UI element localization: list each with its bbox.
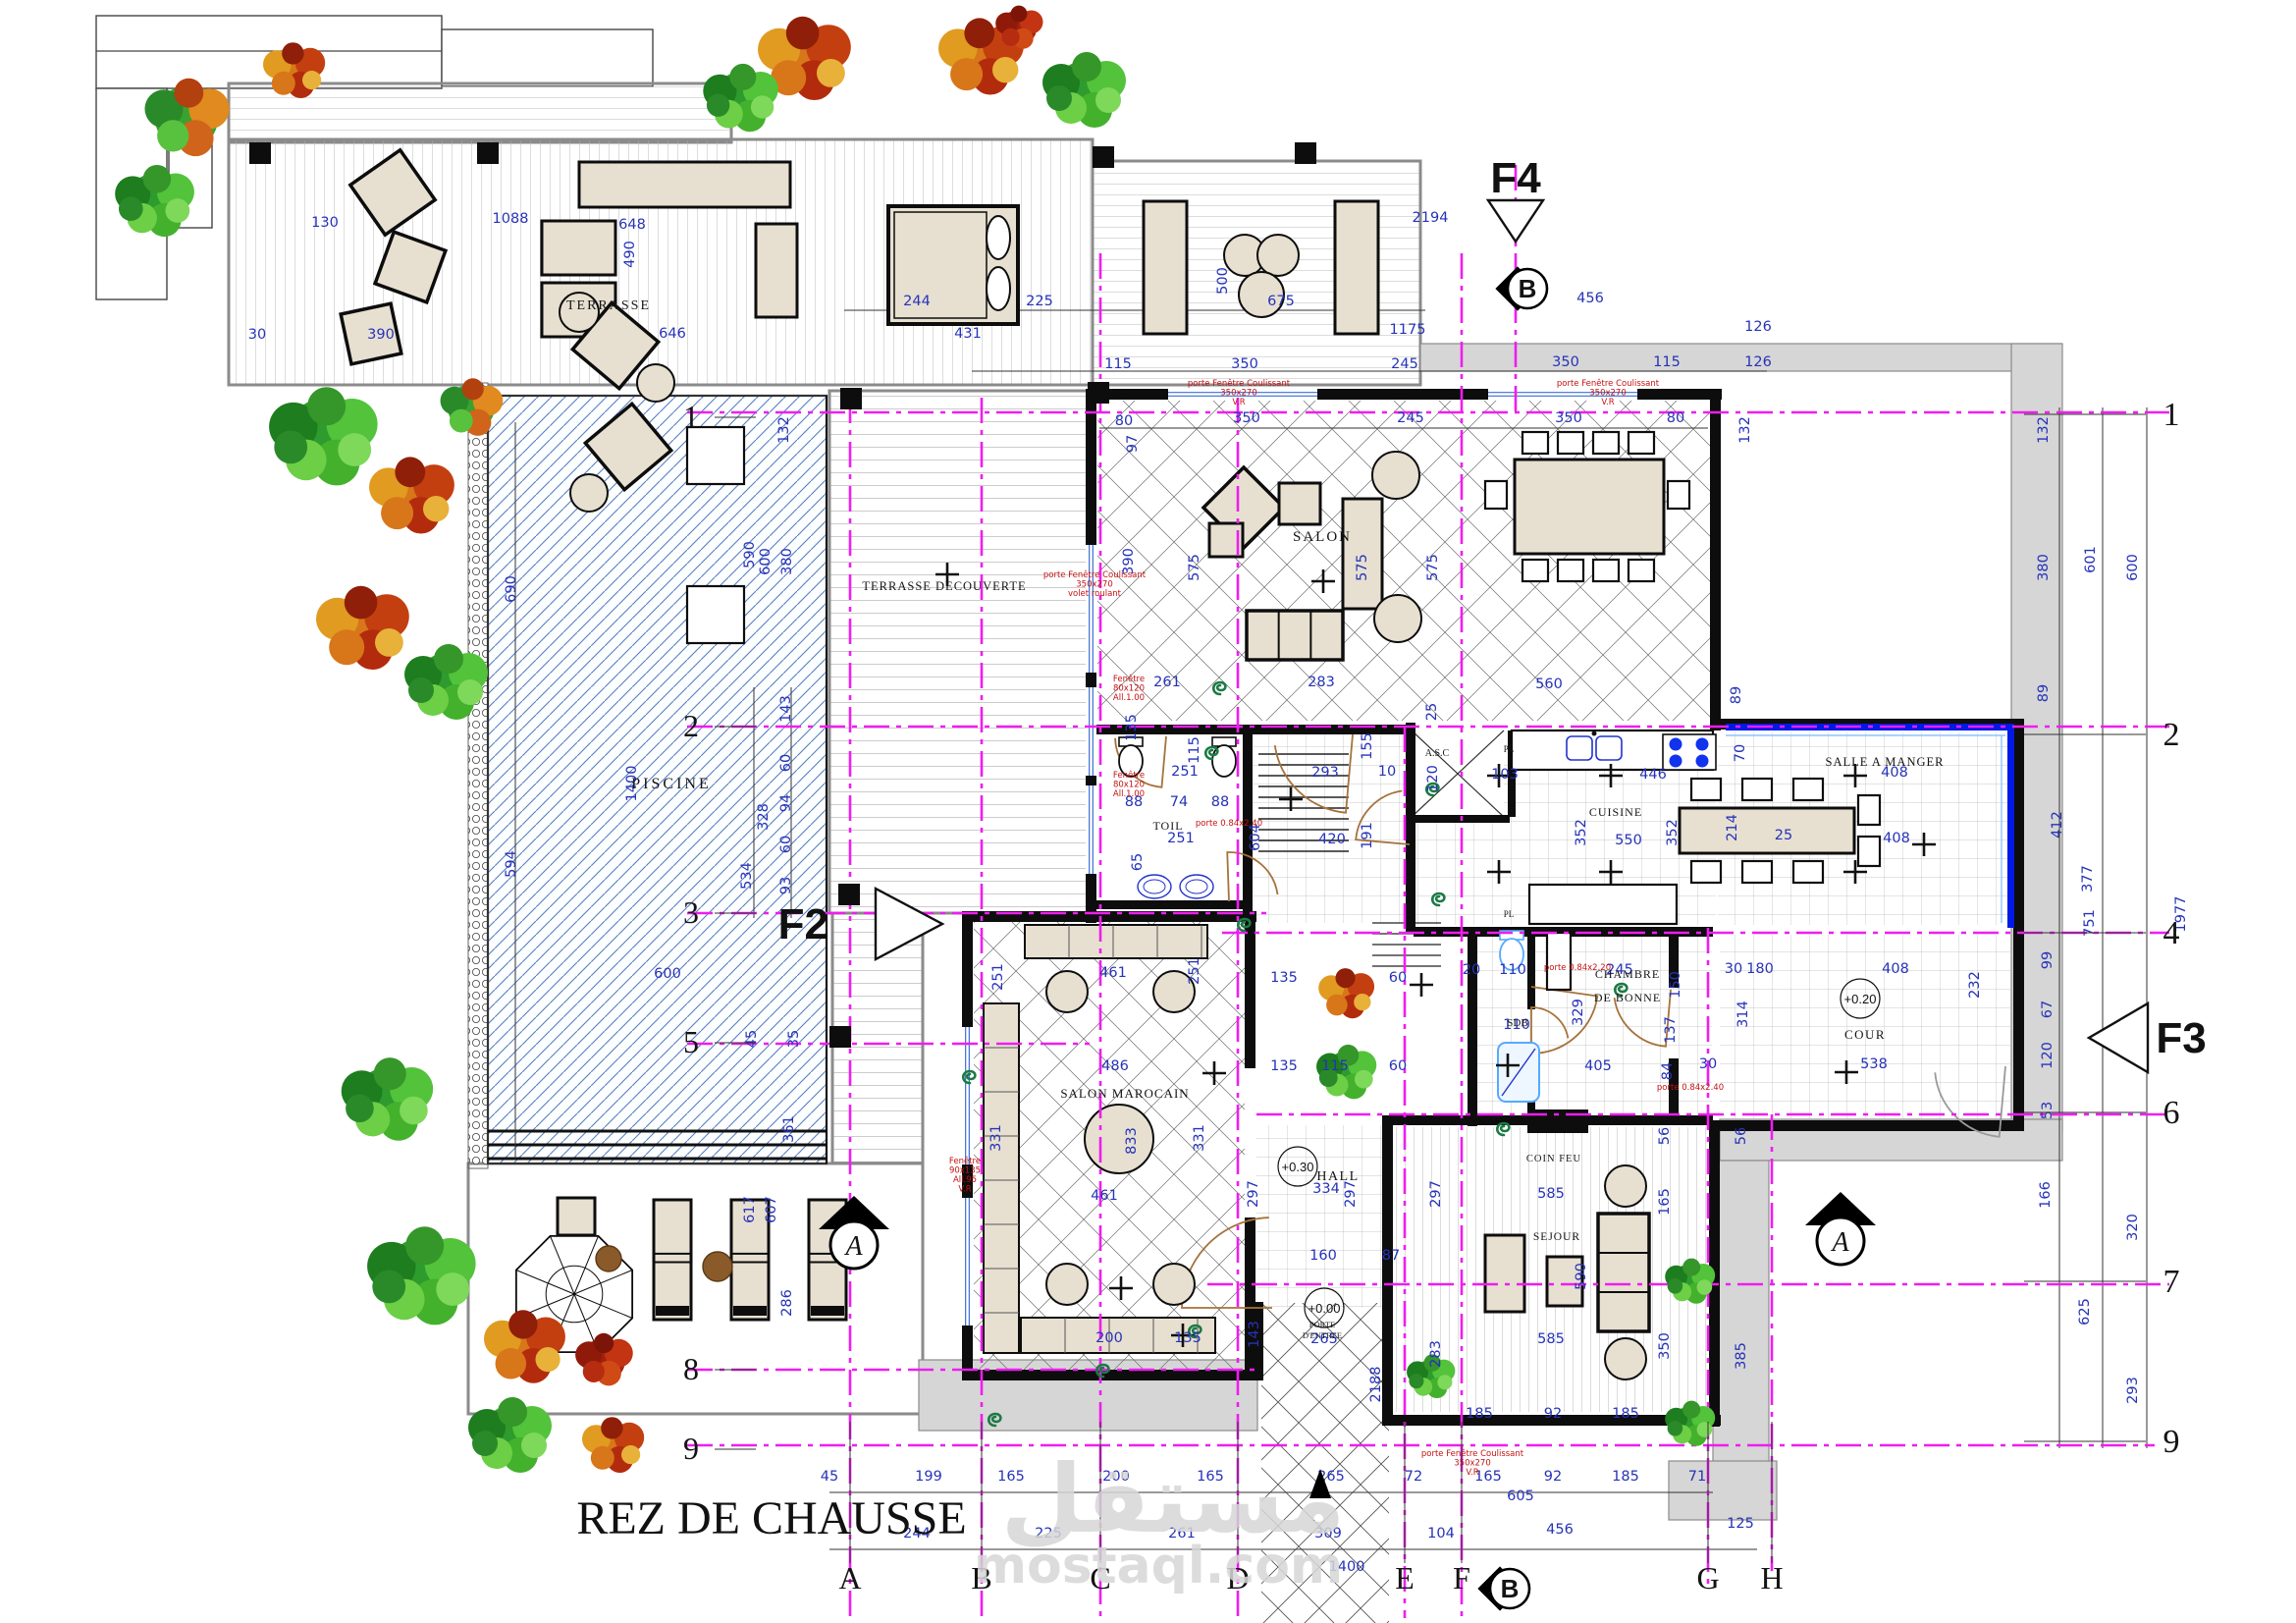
dimension-label: 350 (1231, 356, 1258, 372)
burner (1670, 755, 1682, 768)
dimension-label: 25 (1424, 703, 1440, 721)
dimension-label: 137 (1663, 1016, 1679, 1044)
window-annotation: Fenêtre80x120All.1.00 (1113, 674, 1145, 703)
window (962, 1027, 973, 1164)
dimension-label: 251 (1167, 831, 1195, 846)
dimension-label: 377 (2080, 865, 2096, 893)
dimension-label: 461 (1099, 965, 1127, 981)
grid-number: 1 (683, 399, 699, 434)
room-label: PL (1504, 744, 1515, 754)
dimension-label: 320 (2125, 1214, 2141, 1241)
dimension-label: 560 (1535, 676, 1563, 692)
dimension-label: 135 (1124, 714, 1140, 741)
furniture (558, 1198, 595, 1235)
dimension-label: 245 (1397, 410, 1424, 426)
furniture (1515, 460, 1664, 554)
furniture (1629, 560, 1654, 581)
room-label: DE BONNE (1594, 991, 1661, 1004)
dimension-label: 92 (1544, 1469, 1562, 1485)
page-title: REZ DE CHAUSSE (576, 1492, 966, 1544)
roof-outline (96, 16, 442, 88)
furniture (1335, 201, 1378, 334)
grid-letter: F (1453, 1560, 1470, 1596)
dimension-label: 70 (1733, 744, 1748, 762)
dimension-label: 115 (1653, 354, 1681, 370)
dimension-label: 130 (311, 215, 339, 231)
window (1086, 785, 1096, 874)
dimension-label: 115 (1321, 1058, 1349, 1074)
kitchen-sink (1596, 736, 1622, 760)
dimension-label: 200 (1095, 1330, 1123, 1346)
grid-number: 1 (2163, 397, 2180, 433)
round-furniture (1046, 1264, 1088, 1305)
bench (984, 1003, 1019, 1353)
dimension-label: 104 (1427, 1526, 1455, 1542)
room-label: HALL (1316, 1169, 1359, 1184)
wc-bowl (1212, 745, 1236, 777)
room-label: SALON MAROCAIN (1060, 1086, 1189, 1101)
dimension-label: 89 (2036, 684, 2052, 702)
dimension-label: 600 (2125, 554, 2141, 581)
level-value: +0.30 (1282, 1160, 1314, 1174)
dimension-label: 232 (1967, 971, 1983, 999)
grid-number: 4 (2163, 915, 2180, 951)
furniture (1522, 560, 1548, 581)
window (1086, 545, 1096, 673)
furniture (756, 224, 797, 317)
pillow (987, 216, 1010, 259)
column-post (1295, 142, 1316, 164)
grid-number: 2 (683, 708, 699, 743)
dimension-label: 67 (2040, 1001, 2056, 1018)
dimension-label: 646 (659, 326, 686, 342)
dimension-label: 486 (1101, 1058, 1129, 1074)
wall (1710, 389, 1721, 730)
furniture (1144, 201, 1187, 334)
dimension-label: 99 (2040, 951, 2056, 969)
dimension-label: 132 (776, 416, 792, 444)
wall (1527, 927, 1535, 1009)
dimension-label: 431 (954, 326, 982, 342)
wall (1406, 723, 1415, 933)
dimension-label: 380 (779, 548, 795, 575)
dimension-label: 60 (1389, 970, 1407, 986)
dimension-label: 251 (990, 963, 1006, 991)
dimension-label: 283 (1428, 1340, 1444, 1368)
dimension-label: 165 (1657, 1188, 1673, 1216)
dimension-label: 297 (1428, 1180, 1444, 1208)
furniture (687, 427, 744, 484)
dimension-label: 412 (2050, 811, 2065, 839)
dimension-label: 30 (1725, 961, 1742, 977)
dimension-label: 575 (1187, 554, 1202, 581)
window (1086, 687, 1096, 776)
dimension-label: 361 (781, 1115, 797, 1143)
dimension-label: 25 (1775, 828, 1792, 843)
dimension-label: 214 (1725, 814, 1740, 841)
grid-number: 2 (2163, 717, 2180, 753)
section-marker-a: A (843, 1231, 863, 1262)
dimension-label: 675 (1267, 294, 1295, 309)
furniture (1691, 861, 1721, 883)
dimension-label: 30 (248, 327, 266, 343)
burner (1696, 738, 1709, 751)
window-annotation: porte 0.84x2.20 (1544, 963, 1611, 973)
window-band (2007, 724, 2014, 928)
dimension-label: 191 (1360, 822, 1375, 849)
dimension-label: 350 (1552, 354, 1579, 370)
roof-outline (442, 29, 653, 86)
dimension-label: 594 (504, 850, 519, 878)
round-furniture (1085, 1105, 1153, 1173)
dimension-label: 185 (1612, 1469, 1639, 1485)
round-furniture (1372, 452, 1419, 499)
grid-letter: H (1760, 1560, 1783, 1596)
dimension-label: 385 (1734, 1342, 1749, 1370)
dimension-label: 244 (903, 294, 931, 309)
furniture (1858, 795, 1880, 825)
dimension-label: 600 (758, 548, 774, 575)
terrace-deck (829, 391, 1090, 913)
furniture (1522, 432, 1548, 454)
dimension-label: 126 (1744, 319, 1772, 335)
round-furniture (1605, 1338, 1646, 1380)
wall (1716, 1120, 2024, 1131)
furniture (1593, 432, 1619, 454)
room-label: SALLE A MANGER (1826, 755, 1945, 769)
dimension-label: 690 (504, 575, 519, 603)
dimension-label: 143 (1247, 1321, 1262, 1348)
dimension-label: 125 (1727, 1516, 1754, 1532)
dimension-label: 408 (1883, 831, 1910, 846)
side-table (703, 1252, 732, 1281)
dimension-label: 534 (739, 862, 755, 890)
dimension-label: 380 (2036, 554, 2052, 581)
lounger-foot (733, 1306, 767, 1316)
column-post (477, 142, 499, 164)
room-floor (1253, 730, 1410, 923)
furniture (542, 221, 615, 275)
dimension-label: 56 (1657, 1127, 1673, 1145)
grid-number: 6 (2163, 1095, 2180, 1131)
dimension-label: 80 (1667, 410, 1684, 426)
furniture (1668, 481, 1689, 509)
dimension-label: 590 (742, 541, 758, 568)
dimension-label: 251 (1171, 764, 1199, 780)
section-marker-f2: F2 (778, 900, 828, 948)
furniture (579, 162, 790, 207)
pillow (987, 267, 1010, 310)
side-table (596, 1246, 621, 1271)
room-label: PISCINE (631, 776, 711, 792)
round-furniture (1046, 971, 1088, 1012)
grid-number: 3 (683, 894, 699, 930)
dimension-label: 120 (1425, 765, 1441, 792)
dimension-label: 199 (915, 1469, 942, 1485)
column-post (249, 142, 271, 164)
section-cut-triangle (2089, 1003, 2148, 1072)
room-floor (1256, 1125, 1382, 1308)
dimension-label: 585 (1537, 1331, 1565, 1347)
window-annotation: porte 0.84x2.40 (1196, 819, 1262, 829)
furniture (1529, 885, 1677, 924)
furniture (1691, 779, 1721, 800)
dimension-label: 135 (1270, 970, 1298, 986)
floor-plan-drawing: 1088648130219424422567545643111751263039… (0, 0, 2296, 1623)
dimension-label: 456 (1576, 291, 1604, 306)
round-furniture (570, 474, 608, 512)
dimension-label: 45 (744, 1030, 760, 1048)
dimension-label: 617 (742, 1196, 758, 1223)
dimension-label: 833 (1124, 1127, 1140, 1155)
dimension-label: 550 (1615, 833, 1642, 848)
dimension-label: 115 (1187, 736, 1202, 764)
dimension-label: 185 (1612, 1406, 1639, 1422)
dimension-label: 297 (1343, 1180, 1359, 1208)
dimension-label: 585 (1537, 1186, 1565, 1202)
grid-letter: G (1696, 1560, 1719, 1596)
section-marker-f4: F4 (1490, 154, 1541, 202)
dimension-label: 575 (1355, 554, 1370, 581)
tree-icon (1318, 968, 1374, 1018)
grid-number: 7 (2163, 1264, 2180, 1300)
column-post (1093, 146, 1114, 168)
dimension-label: 490 (622, 241, 638, 268)
sofa (1598, 1214, 1649, 1331)
dimension-label: 607 (764, 1196, 779, 1223)
dimension-label: 408 (1882, 961, 1909, 977)
dimension-label: 120 (2040, 1042, 2056, 1069)
window-annotation: porte Fenêtre Coulissant350x270V.R (1421, 1448, 1524, 1478)
grid-number: 5 (683, 1024, 699, 1059)
dimension-label: 72 (1405, 1469, 1422, 1485)
dimension-label: 74 (1170, 794, 1188, 810)
room-label: PL (1504, 909, 1515, 919)
dimension-label: 575 (1425, 554, 1441, 581)
dimension-label: 350 (1555, 410, 1582, 426)
round-furniture (1153, 1264, 1195, 1305)
dimension-label: 110 (1499, 962, 1526, 978)
dimension-label: 283 (1308, 675, 1335, 690)
dimension-label: 420 (1318, 832, 1346, 847)
furniture (1680, 808, 1854, 853)
furniture (1742, 861, 1772, 883)
sun-lounger (654, 1200, 691, 1320)
dimension-label: 286 (779, 1289, 795, 1317)
furniture (687, 586, 744, 643)
dimension-label: 160 (1309, 1248, 1337, 1264)
section-cut-triangle (1488, 200, 1543, 242)
washbasin (1138, 875, 1171, 898)
kitchen-sink (1567, 736, 1592, 760)
dimension-label: 1175 (1390, 322, 1426, 338)
furniture (1793, 779, 1823, 800)
dimension-label: 297 (1246, 1180, 1261, 1208)
watermark-latin: mostaql.com (974, 1537, 1343, 1596)
room-label: SALON (1293, 529, 1352, 545)
dimension-label: 180 (1746, 961, 1774, 977)
dimension-label: 53 (2040, 1102, 2056, 1119)
section-marker-b: B (1519, 274, 1537, 303)
dimension-label: 56 (1734, 1127, 1749, 1145)
round-furniture (637, 364, 674, 402)
column-post (838, 884, 860, 905)
dimension-label: 45 (821, 1469, 838, 1485)
dimension-label: 84 (1660, 1062, 1676, 1080)
round-furniture (1605, 1165, 1646, 1207)
room-label: D'ENTREE (1303, 1330, 1342, 1340)
dimension-label: 35 (786, 1030, 802, 1048)
dimension-label: 600 (654, 966, 681, 982)
tree-icon (1042, 52, 1126, 128)
dimension-label: 350 (1233, 410, 1260, 426)
dimension-label: 89 (1729, 686, 1744, 704)
window-annotation: Fenêtre80x120All.1.00 (1113, 770, 1145, 799)
grid-number: 9 (683, 1431, 699, 1466)
furniture (1343, 499, 1382, 609)
tree-icon (316, 586, 409, 670)
dimension-label: 94 (778, 794, 794, 812)
furniture (1558, 560, 1583, 581)
room-label: A.S.C (1425, 748, 1450, 759)
dimension-label: 538 (1860, 1056, 1888, 1072)
dimension-label: 60 (778, 754, 794, 772)
pool-stone-edge (468, 383, 488, 1168)
dimension-label: 10 (1378, 764, 1396, 780)
dimension-label: 331 (1192, 1124, 1207, 1152)
section-marker-f3: F3 (2156, 1014, 2206, 1062)
furniture (1485, 1235, 1524, 1312)
room-label: SEJOUR (1533, 1231, 1580, 1243)
tree-icon (369, 457, 454, 533)
dimension-label: 2194 (1413, 210, 1449, 226)
dimension-label: 329 (1571, 999, 1586, 1026)
dimension-label: 293 (2125, 1377, 2141, 1404)
dimension-label: 65 (1130, 853, 1146, 871)
grid-number: 9 (2163, 1424, 2180, 1460)
wall (1468, 927, 1477, 1126)
dimension-label: 1088 (493, 211, 529, 227)
dimension-label: 87 (1382, 1248, 1400, 1264)
grid-letter: E (1395, 1560, 1415, 1596)
dimension-label: 71 (1688, 1469, 1706, 1485)
dimension-label: 103 (1491, 767, 1519, 783)
dimension-label: 601 (2083, 546, 2099, 573)
room-label: CUISINE (1589, 805, 1642, 819)
column-post (840, 388, 862, 409)
dimension-label: 185 (1466, 1406, 1493, 1422)
level-value: +0.20 (1844, 992, 1877, 1006)
dimension-label: 150 (1668, 971, 1683, 999)
section-marker-b: B (1501, 1574, 1520, 1603)
furniture (1629, 432, 1654, 454)
dimension-label: 605 (1507, 1488, 1534, 1504)
dimension-label: 97 (1125, 435, 1141, 453)
burner (1696, 755, 1709, 768)
column-post (829, 1026, 851, 1048)
furniture (1793, 861, 1823, 883)
dimension-label: 30 (1699, 1056, 1717, 1072)
dimension-label: 20 (1463, 962, 1480, 978)
grid-number: 8 (683, 1351, 699, 1386)
dimension-label: 245 (1391, 356, 1418, 372)
dimension-label: 225 (1026, 294, 1053, 309)
floor-plan-canvas: 1088648130219424422567545643111751263039… (0, 0, 2296, 1623)
wall (1245, 911, 1255, 1068)
dimension-label: 500 (1215, 267, 1231, 295)
room-label: TERRASSE DECOUVERTE (862, 579, 1026, 593)
furniture (1593, 560, 1619, 581)
dimension-label: 405 (1584, 1058, 1612, 1074)
dimension-label: 314 (1735, 1001, 1751, 1028)
tree-icon (342, 1057, 434, 1141)
dimension-label: 2188 (1368, 1367, 1384, 1403)
dimension-label: 352 (1665, 819, 1681, 846)
round-furniture (1257, 235, 1299, 276)
dimension-label: 166 (2038, 1181, 2054, 1209)
dimension-label: 115 (1104, 356, 1132, 372)
wall (1086, 900, 1248, 909)
wall (2013, 719, 2024, 1131)
dimension-label: 625 (2077, 1298, 2093, 1325)
washbasin (1180, 875, 1213, 898)
dimension-label: 92 (1544, 1406, 1562, 1422)
round-furniture (1374, 595, 1421, 642)
room-label: TOIL (1152, 819, 1183, 833)
furniture (1742, 779, 1772, 800)
grid-letter: A (838, 1560, 861, 1596)
walkway-band (1669, 1461, 1777, 1520)
dimension-label: 132 (2036, 416, 2052, 444)
dimension-label: 331 (988, 1124, 1004, 1152)
dimension-label: 328 (756, 803, 772, 831)
bench (1025, 925, 1207, 958)
level-value: +0.00 (1308, 1301, 1341, 1316)
dimension-label: 293 (1311, 765, 1339, 781)
tree-icon (367, 1226, 476, 1325)
reference-cross (1410, 973, 1433, 997)
wall (1527, 1109, 1588, 1133)
dimension-label: 135 (1270, 1058, 1298, 1074)
room-label: COUR (1844, 1027, 1886, 1042)
dimension-label: 143 (778, 695, 794, 723)
dimension-label: 251 (1187, 957, 1202, 985)
tree-icon (582, 1417, 644, 1473)
column-post (1088, 382, 1109, 404)
dimension-label: 590 (1574, 1263, 1589, 1290)
furniture (1558, 432, 1583, 454)
room-label: SDB (1507, 1017, 1527, 1029)
dimension-label: 126 (1744, 354, 1772, 370)
dimension-label: 135 (1174, 1330, 1201, 1346)
dimension-label: 261 (1153, 675, 1181, 690)
dimension-label: 60 (1389, 1058, 1407, 1074)
dimension-label: 80 (1115, 413, 1133, 429)
lounger-foot (656, 1306, 689, 1316)
dimension-label: 461 (1091, 1188, 1118, 1204)
furniture (1858, 837, 1880, 866)
dimension-label: 93 (778, 877, 794, 894)
window-annotation: porte 0.84x2.40 (1657, 1083, 1724, 1093)
burner (1670, 738, 1682, 751)
furniture (1547, 933, 1571, 990)
furniture (1485, 481, 1507, 509)
dimension-label: 446 (1639, 767, 1667, 783)
dimension-label: 456 (1546, 1522, 1574, 1538)
section-marker-a: A (1830, 1227, 1849, 1258)
dimension-label: 88 (1211, 794, 1229, 810)
room-label: TERRASSE (566, 298, 651, 313)
